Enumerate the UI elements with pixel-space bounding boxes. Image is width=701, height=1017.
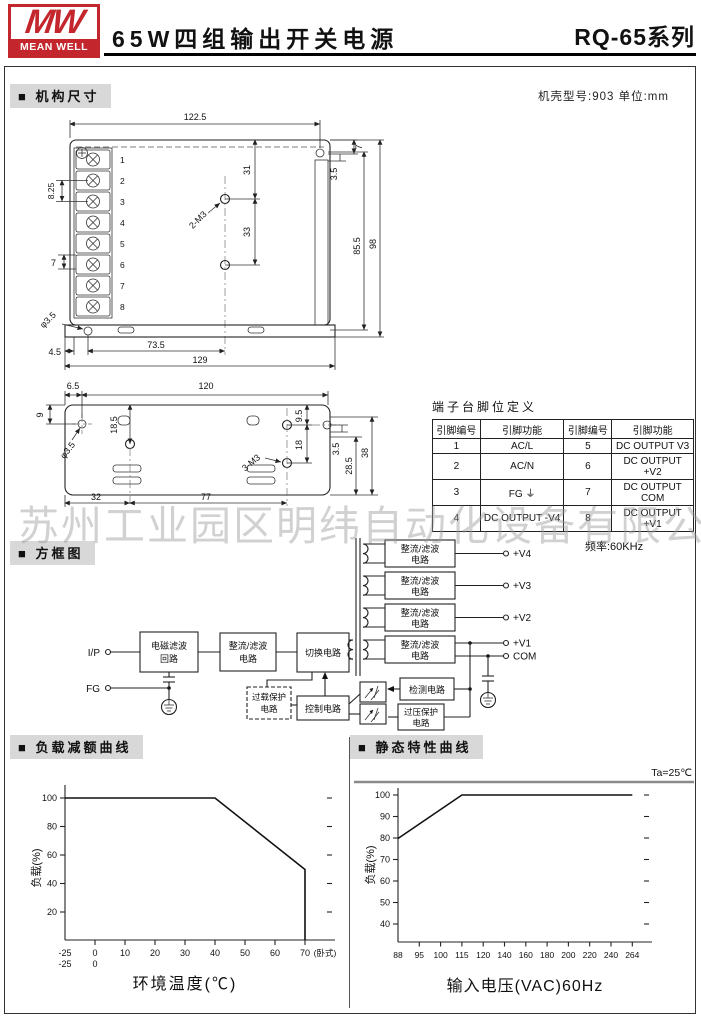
- box-label: 过压保护: [404, 707, 438, 717]
- pin-cell: DC OUTPUT COM: [612, 480, 694, 506]
- dim-2-m3: 2-M3: [187, 209, 209, 231]
- front-view: 1 2 3 4 5 6 7 8: [65, 140, 335, 355]
- terminal-num: 4: [120, 218, 125, 228]
- logo-mw-icon: MW: [8, 3, 99, 42]
- optocoupler-icon: [360, 682, 386, 702]
- dim-129: 129: [192, 355, 207, 365]
- x-tick: 264: [625, 950, 639, 960]
- static-curve-line: [398, 795, 632, 839]
- box-label: 整流/滤波: [401, 639, 440, 650]
- dim-122-5: 122.5: [184, 112, 207, 122]
- x-axis-note: (卧式): [314, 948, 337, 958]
- dim-hole-front: φ3.5: [38, 310, 58, 330]
- pin-cell: 7: [564, 480, 612, 506]
- pin-cell: 2: [433, 454, 481, 480]
- dim-7-top: 7: [354, 144, 364, 149]
- box-label: 整流/滤波: [401, 575, 440, 586]
- x-tick: 115: [455, 950, 469, 960]
- terminal-6: [76, 255, 110, 274]
- pin-cell: 3: [433, 480, 481, 506]
- frequency-note: 频率:60KHz: [585, 539, 643, 553]
- pin-cell: DC OUTPUT +V2: [612, 454, 694, 480]
- y-axis-label: 负载(%): [363, 845, 377, 884]
- overvoltage-protection-box: 过压保护 电路: [398, 704, 444, 730]
- terminal-num: 5: [120, 239, 125, 249]
- x-tick: 30: [180, 948, 190, 958]
- dc-outputs: +V4 +V3 +V2 +V1 COM: [455, 549, 536, 663]
- capacitor-icon: [482, 656, 494, 692]
- y-tick: 70: [380, 855, 390, 865]
- dim-9: 9: [35, 412, 45, 417]
- y-tick: 40: [380, 919, 390, 929]
- y-tick: 90: [380, 812, 390, 822]
- y-tick: 40: [47, 879, 57, 889]
- x-tick: 120: [476, 950, 490, 960]
- box-label: 检测电路: [409, 684, 445, 695]
- section-derating-curve: ■ 负载减额曲线: [10, 735, 143, 759]
- box-label: 电路: [412, 718, 430, 728]
- y-tick: 80: [47, 822, 57, 832]
- pin-col-header: 引脚功能: [480, 420, 564, 439]
- box-label: 过载保护: [252, 692, 286, 702]
- y-tick: 80: [380, 833, 390, 843]
- output-rectifier-2: 整流/滤波 电路: [385, 572, 455, 599]
- capacitor-icon: [163, 672, 175, 688]
- dim-18-5: 18.5: [109, 416, 119, 434]
- x-tick: 88: [393, 950, 403, 960]
- x-tick: 180: [540, 950, 554, 960]
- pin-table-grid: 引脚编号 引脚功能 引脚编号 引脚功能 1 AC/L 5 DC OUTPUT V…: [432, 419, 694, 532]
- terminal-7: [76, 276, 110, 295]
- fg-label: FG: [86, 684, 100, 695]
- box-label: 整流/滤波: [229, 640, 268, 651]
- y-tick: 100: [375, 790, 390, 800]
- x-tick: 140: [497, 950, 511, 960]
- box-label: 电路: [411, 586, 429, 597]
- box-label: 电路: [411, 554, 429, 565]
- datasheet-page: MW MEAN WELL 65W四组输出开关电源 RQ-65系列 ■ 机构尺寸 …: [0, 0, 701, 1017]
- x-tick: 20: [150, 948, 160, 958]
- x-tick: 240: [604, 950, 618, 960]
- x-tick: 0: [92, 948, 97, 958]
- x-tick: 100: [434, 950, 448, 960]
- bottom-view-dimensions: 6.5 120 9 φ3.5 18.5 3-M3 9.5 18: [35, 381, 378, 507]
- box-label: 电磁滤波: [151, 640, 187, 651]
- mechanical-drawings: 1 2 3 4 5 6 7 8 122.5 3: [10, 108, 430, 518]
- earth-ground-icon: [481, 693, 496, 708]
- terminal-num: 7: [120, 281, 125, 291]
- derating-curve-line: [65, 798, 305, 940]
- pin-cell: AC/N: [480, 454, 564, 480]
- output-com: COM: [513, 652, 536, 663]
- dim-77: 77: [201, 492, 211, 502]
- dim-7-left: 7: [51, 258, 56, 268]
- pin-col-header: 引脚功能: [612, 420, 694, 439]
- box-label: 切换电路: [305, 647, 341, 658]
- output-v1: +V1: [513, 639, 532, 650]
- series-name: RQ-65系列: [520, 18, 695, 52]
- dim-6-5: 6.5: [67, 381, 80, 391]
- box-label: 回路: [160, 653, 178, 664]
- section-mechanical: ■ 机构尺寸: [10, 84, 111, 108]
- pin-cell: 5: [564, 439, 612, 454]
- x-tick: -25: [58, 948, 71, 958]
- dim-3-5-top: 3.5: [329, 168, 339, 181]
- x-axis-ticks: 88 95 100 115 120 140 160 180 200 220 24…: [393, 942, 639, 960]
- terminal-8: [76, 297, 110, 316]
- pin-table-title: 端子台脚位定义: [432, 398, 694, 415]
- chart-divider: [349, 737, 350, 1008]
- pin-cell: AC/L: [480, 439, 564, 454]
- front-view-dimensions: 122.5 31 33 2-M3 7 3.5 85.5 98: [38, 112, 384, 370]
- header-underline: [104, 53, 696, 56]
- terminal-4: [76, 213, 110, 232]
- box-label: 电路: [260, 704, 278, 714]
- dim-8-25: 8.25: [46, 182, 56, 199]
- y-tick: 100: [42, 793, 57, 803]
- output-v4: +V4: [513, 549, 532, 560]
- x-tick: 10: [120, 948, 130, 958]
- dim-73-5: 73.5: [147, 340, 165, 350]
- pin-col-header: 引脚编号: [564, 420, 612, 439]
- y-axis-ticks: 100 90 80 70 60 50 40: [375, 790, 649, 929]
- terminal-num: 2: [120, 176, 125, 186]
- y-tick: 60: [380, 876, 390, 886]
- x-tick: 160: [519, 950, 533, 960]
- pin-cell: FG ⏚: [480, 480, 564, 506]
- x-tick: 50: [240, 948, 250, 958]
- box-label: 控制电路: [305, 703, 341, 714]
- dim-31: 31: [242, 165, 252, 175]
- x-tick: 200: [561, 950, 575, 960]
- x-tick-row2: -25: [58, 959, 71, 969]
- box-label: 整流/滤波: [401, 543, 440, 554]
- dim-9-5: 9.5: [294, 410, 304, 423]
- terminal-num: 6: [120, 260, 125, 270]
- y-tick: 60: [47, 850, 57, 860]
- x-tick: 95: [415, 950, 425, 960]
- dim-33: 33: [242, 227, 252, 237]
- detection-box: 检测电路: [400, 678, 454, 700]
- terminal-num: 3: [120, 197, 125, 207]
- box-label: 电路: [239, 653, 257, 664]
- output-v3: +V3: [513, 581, 532, 592]
- overload-protection-box: 过载保护 电路: [247, 687, 291, 719]
- static-chart: Ta=25℃ 100 90 80 70 60 50 40: [352, 760, 697, 1010]
- input-label: I/P: [88, 648, 101, 659]
- dim-4-5: 4.5: [48, 347, 61, 357]
- dim-hole-bottom: φ3.5: [58, 440, 77, 461]
- rectifier-filter-box: 整流/滤波 电路: [220, 633, 276, 671]
- dim-120: 120: [198, 381, 213, 391]
- terminal-5: [76, 234, 110, 253]
- output-v2: +V2: [513, 613, 532, 624]
- terminal-num: 8: [120, 302, 125, 312]
- x-axis-ticks: -25 0 10 20 30 40 50 60 70 -25 0 (卧式): [58, 940, 336, 969]
- x-tick-row2: 0: [92, 959, 97, 969]
- pin-table: 端子台脚位定义 引脚编号 引脚功能 引脚编号 引脚功能 1 AC/L 5 DC …: [432, 398, 694, 532]
- x-axis-label: 环境温度(℃): [133, 974, 238, 993]
- dim-3-m3: 3-M3: [240, 452, 262, 473]
- switching-box: 切换电路: [297, 633, 349, 672]
- box-label: 电路: [411, 650, 429, 661]
- emi-filter-box: 电磁滤波 回路: [140, 632, 198, 672]
- terminal-num: 1: [120, 155, 125, 165]
- block-diagram: 频率:60KHz 整流/滤波 电路 整流/滤波 电路: [60, 528, 695, 733]
- box-label: 电路: [411, 618, 429, 629]
- dim-28-5: 28.5: [344, 457, 354, 475]
- meanwell-logo: MW MEAN WELL: [8, 4, 100, 58]
- dim-3-5-right: 3.5: [331, 443, 341, 456]
- box-label: 整流/滤波: [401, 607, 440, 618]
- dim-32: 32: [91, 492, 101, 502]
- dim-98: 98: [368, 239, 378, 249]
- section-static-curve: ■ 静态特性曲线: [350, 735, 483, 759]
- dim-38: 38: [360, 448, 370, 458]
- x-tick: 220: [583, 950, 597, 960]
- earth-ground-icon: [162, 688, 177, 715]
- dim-85-5: 85.5: [352, 237, 362, 255]
- pin-col-header: 引脚编号: [433, 420, 481, 439]
- x-tick: 70: [300, 948, 310, 958]
- pin-cell: 1: [433, 439, 481, 454]
- ta-annotation: Ta=25℃: [651, 767, 692, 779]
- y-tick: 20: [47, 907, 57, 917]
- output-rectifier-1: 整流/滤波 电路: [385, 540, 455, 567]
- page-title: 65W四组输出开关电源: [112, 20, 398, 54]
- y-axis-ticks: 100 80 60 40 20: [42, 793, 332, 917]
- transformer-icon: [348, 538, 385, 676]
- output-rectifier-4: 整流/滤波 电路: [385, 636, 455, 663]
- y-tick: 50: [380, 898, 390, 908]
- x-axis-label: 输入电压(VAC)60Hz: [447, 977, 604, 995]
- pin-cell: 6: [564, 454, 612, 480]
- control-box: 控制电路: [297, 696, 349, 720]
- output-rectifier-3: 整流/滤波 电路: [385, 604, 455, 631]
- derating-chart: 100 80 60 40 20 -25 0 10 20 30 40 50 60 …: [20, 760, 345, 1010]
- optocoupler-icon: [360, 704, 386, 724]
- case-model-note: 机壳型号:903 单位:mm: [538, 88, 669, 104]
- logo-brand: MEAN WELL: [11, 39, 97, 55]
- y-axis-label: 负载(%): [29, 848, 43, 887]
- x-tick: 60: [270, 948, 280, 958]
- pin-cell: DC OUTPUT V3: [612, 439, 694, 454]
- dim-18: 18: [294, 440, 304, 450]
- x-tick: 40: [210, 948, 220, 958]
